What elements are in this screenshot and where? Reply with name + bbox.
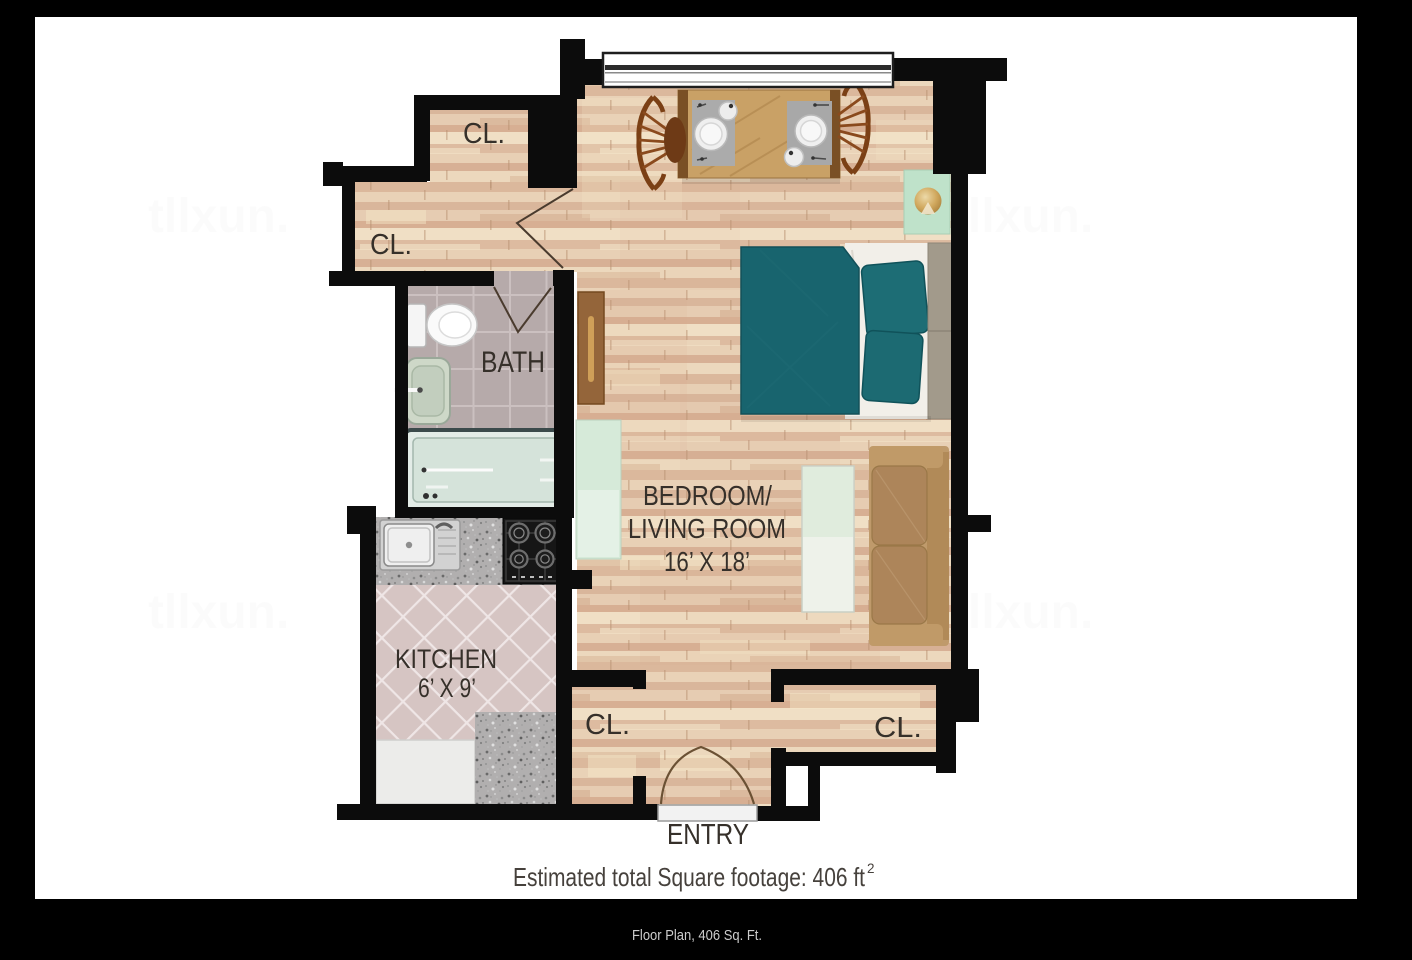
svg-text:ENTRY: ENTRY — [667, 819, 749, 851]
svg-text:LIVING ROOM: LIVING ROOM — [628, 513, 786, 544]
svg-text:CL.: CL. — [370, 229, 412, 261]
svg-text:fllxun.: fllxun. — [952, 586, 1093, 639]
svg-text:tllxun.: tllxun. — [148, 586, 289, 639]
svg-text:CL.: CL. — [874, 712, 922, 744]
svg-text:Estimated total Square footage: Estimated total Square footage: 406 ft — [513, 862, 866, 892]
svg-text:KITCHEN: KITCHEN — [395, 644, 497, 674]
svg-text:16’ X 18’: 16’ X 18’ — [664, 546, 750, 577]
svg-text:fllxun.: fllxun. — [952, 190, 1093, 243]
svg-text:6’ X 9’: 6’ X 9’ — [418, 673, 476, 703]
svg-text:tllxun.: tllxun. — [148, 190, 289, 243]
svg-text:2: 2 — [867, 861, 875, 876]
svg-text:CL.: CL. — [463, 118, 505, 150]
svg-text:Floor Plan, 406 Sq. Ft.: Floor Plan, 406 Sq. Ft. — [632, 928, 762, 944]
svg-text:BEDROOM/: BEDROOM/ — [643, 480, 772, 511]
svg-text:CL.: CL. — [585, 709, 630, 741]
svg-text:BATH: BATH — [481, 346, 545, 379]
